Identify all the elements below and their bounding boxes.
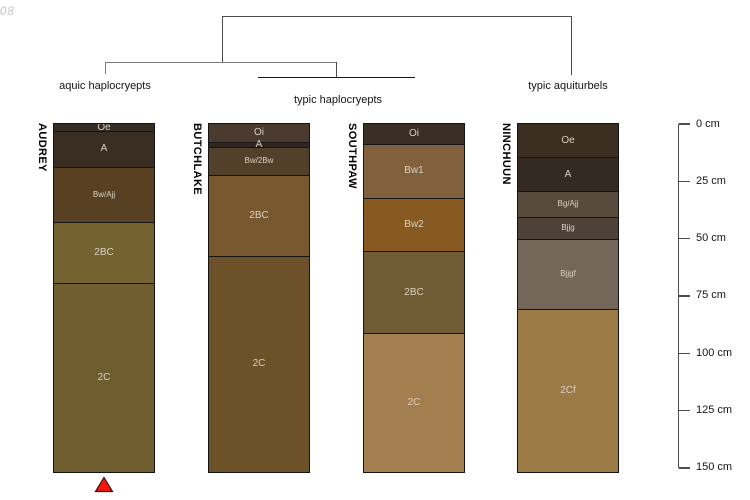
profile-column: OiBw1Bw22BC2C (363, 123, 465, 473)
profile-name-label: BUTCHLAKE (191, 123, 203, 195)
profile-name-label: SOUTHPAW (346, 123, 358, 189)
depth-tick (679, 238, 690, 239)
depth-tick-label: 25 cm (696, 175, 726, 187)
soil-horizon: A (54, 132, 154, 168)
soil-horizon: Bjjg (518, 218, 618, 240)
soil-horizon: Oe (54, 124, 154, 132)
profile-name-label: NINCHUUN (500, 123, 512, 185)
dendrogram-line (105, 62, 106, 75)
soil-horizon: 2BC (209, 176, 309, 257)
dendrogram-line (222, 16, 572, 17)
red-triangle-marker (94, 476, 114, 498)
depth-tick-label: 125 cm (696, 404, 732, 416)
depth-tick (679, 467, 690, 468)
dendrogram-line (258, 77, 415, 78)
soil-horizon: 2C (209, 257, 309, 472)
depth-tick-label: 0 cm (696, 118, 720, 130)
depth-tick (679, 353, 690, 354)
depth-tick-label: 75 cm (696, 289, 726, 301)
dendrogram-line (571, 16, 572, 75)
depth-tick (679, 410, 690, 411)
soil-horizon: Oi (364, 124, 464, 145)
group-label-aquic-haplocryepts: aquic haplocryepts (59, 80, 151, 92)
group-label-typic-haplocryepts: typic haplocryepts (294, 94, 382, 106)
depth-tick-label: 100 cm (696, 347, 732, 359)
depth-tick-label: 50 cm (696, 232, 726, 244)
soil-horizon: Bjjgf (518, 240, 618, 310)
soil-horizon: A (518, 158, 618, 191)
soil-horizon: 2Cf (518, 310, 618, 472)
profile-name-label: AUDREY (36, 123, 48, 172)
soil-profile-figure: -08 aquic haplocryepts typic haplocryept… (0, 0, 750, 500)
profile-column: OiABw/2Bw2BC2C (208, 123, 310, 473)
depth-tick (679, 123, 690, 124)
depth-tick-label: 150 cm (696, 461, 732, 473)
soil-horizon: Bw/Ajj (54, 168, 154, 223)
soil-horizon: Oe (518, 124, 618, 158)
depth-tick (679, 295, 690, 296)
dendrogram-line (336, 62, 337, 78)
profile-column: OeABg/AjjBjjgBjjgf2Cf (517, 123, 619, 473)
depth-tick (679, 181, 690, 182)
soil-horizon: Bw2 (364, 199, 464, 253)
soil-horizon: 2C (54, 284, 154, 472)
soil-horizon: 2C (364, 334, 464, 472)
group-label-typic-aquiturbels: typic aquiturbels (528, 80, 608, 92)
soil-horizon: Bg/Ajj (518, 192, 618, 218)
soil-horizon: Bw/2Bw (209, 148, 309, 176)
soil-horizon: 2BC (54, 223, 154, 285)
dendrogram-line (105, 62, 337, 63)
soil-horizon: Bw1 (364, 145, 464, 199)
profile-column: OeABw/Ajj2BC2C (53, 123, 155, 473)
soil-horizon: 2BC (364, 252, 464, 333)
dendrogram-line (222, 16, 223, 62)
watermark-text: -08 (0, 6, 15, 18)
